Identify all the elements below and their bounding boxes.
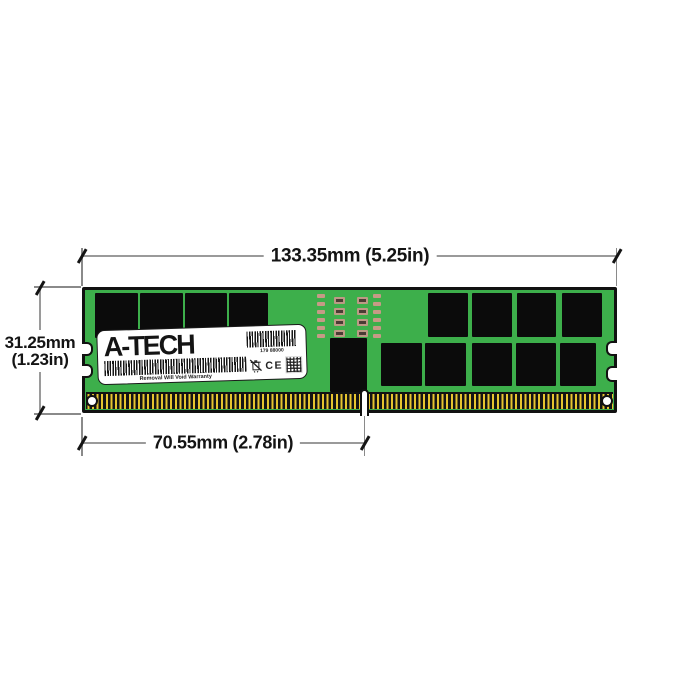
- memory-chip: [472, 343, 512, 386]
- product-label: A-TECH 179 88000 Removal Will Void Warra…: [96, 324, 308, 386]
- smd-component: [334, 308, 345, 315]
- smd-component: [334, 330, 345, 337]
- register-chip: [330, 338, 367, 392]
- side-notch: [82, 364, 93, 378]
- smd-component: [317, 318, 325, 322]
- width-dimension-label: 133.35mm (5.25in): [264, 247, 437, 266]
- smd-component: [334, 319, 345, 326]
- serial-number: 179 88000: [247, 347, 297, 355]
- smd-component: [357, 297, 368, 304]
- smd-component: [317, 326, 325, 330]
- smd-component: [373, 326, 381, 330]
- weee-crossed-bin-icon: [249, 358, 263, 378]
- smd-component: [373, 302, 381, 306]
- smd-component: [357, 308, 368, 315]
- memory-chip: [516, 343, 556, 386]
- height-dimension-in: (1.23in): [11, 350, 68, 369]
- memory-module: A-TECH 179 88000 Removal Will Void Warra…: [82, 287, 617, 413]
- height-dimension-label: 31.25mm (1.23in): [2, 330, 79, 372]
- smd-component: [357, 330, 368, 337]
- smd-component: [373, 294, 381, 298]
- mounting-hole: [601, 395, 613, 407]
- ce-mark: CE: [265, 359, 283, 372]
- memory-chip: [472, 293, 512, 337]
- memory-chip: [425, 343, 466, 386]
- memory-chip: [562, 293, 602, 337]
- smd-component: [373, 310, 381, 314]
- side-notch: [606, 341, 617, 356]
- side-notch: [606, 366, 617, 382]
- smd-component: [334, 297, 345, 304]
- pin-offset-dimension-label: 70.55mm (2.78in): [146, 434, 300, 453]
- memory-chip: [517, 293, 556, 337]
- gold-pins: [86, 392, 613, 409]
- side-notch: [82, 342, 93, 356]
- smd-component: [317, 334, 325, 338]
- smd-component: [317, 302, 325, 306]
- extension-line: [364, 412, 366, 456]
- smd-component: [373, 318, 381, 322]
- smd-component: [317, 294, 325, 298]
- qr-code: [285, 356, 303, 374]
- pin-notch: [360, 389, 369, 416]
- smd-component: [317, 310, 325, 314]
- extension-line: [81, 417, 83, 456]
- smd-component: [373, 334, 381, 338]
- memory-chip: [381, 343, 422, 386]
- product-diagram: 133.35mm (5.25in) 31.25mm (1.23in) 70.55…: [0, 0, 700, 700]
- memory-chip: [428, 293, 468, 337]
- smd-component: [357, 319, 368, 326]
- mounting-hole: [86, 395, 98, 407]
- vertical-barcode: [246, 330, 296, 348]
- memory-chip: [560, 343, 596, 386]
